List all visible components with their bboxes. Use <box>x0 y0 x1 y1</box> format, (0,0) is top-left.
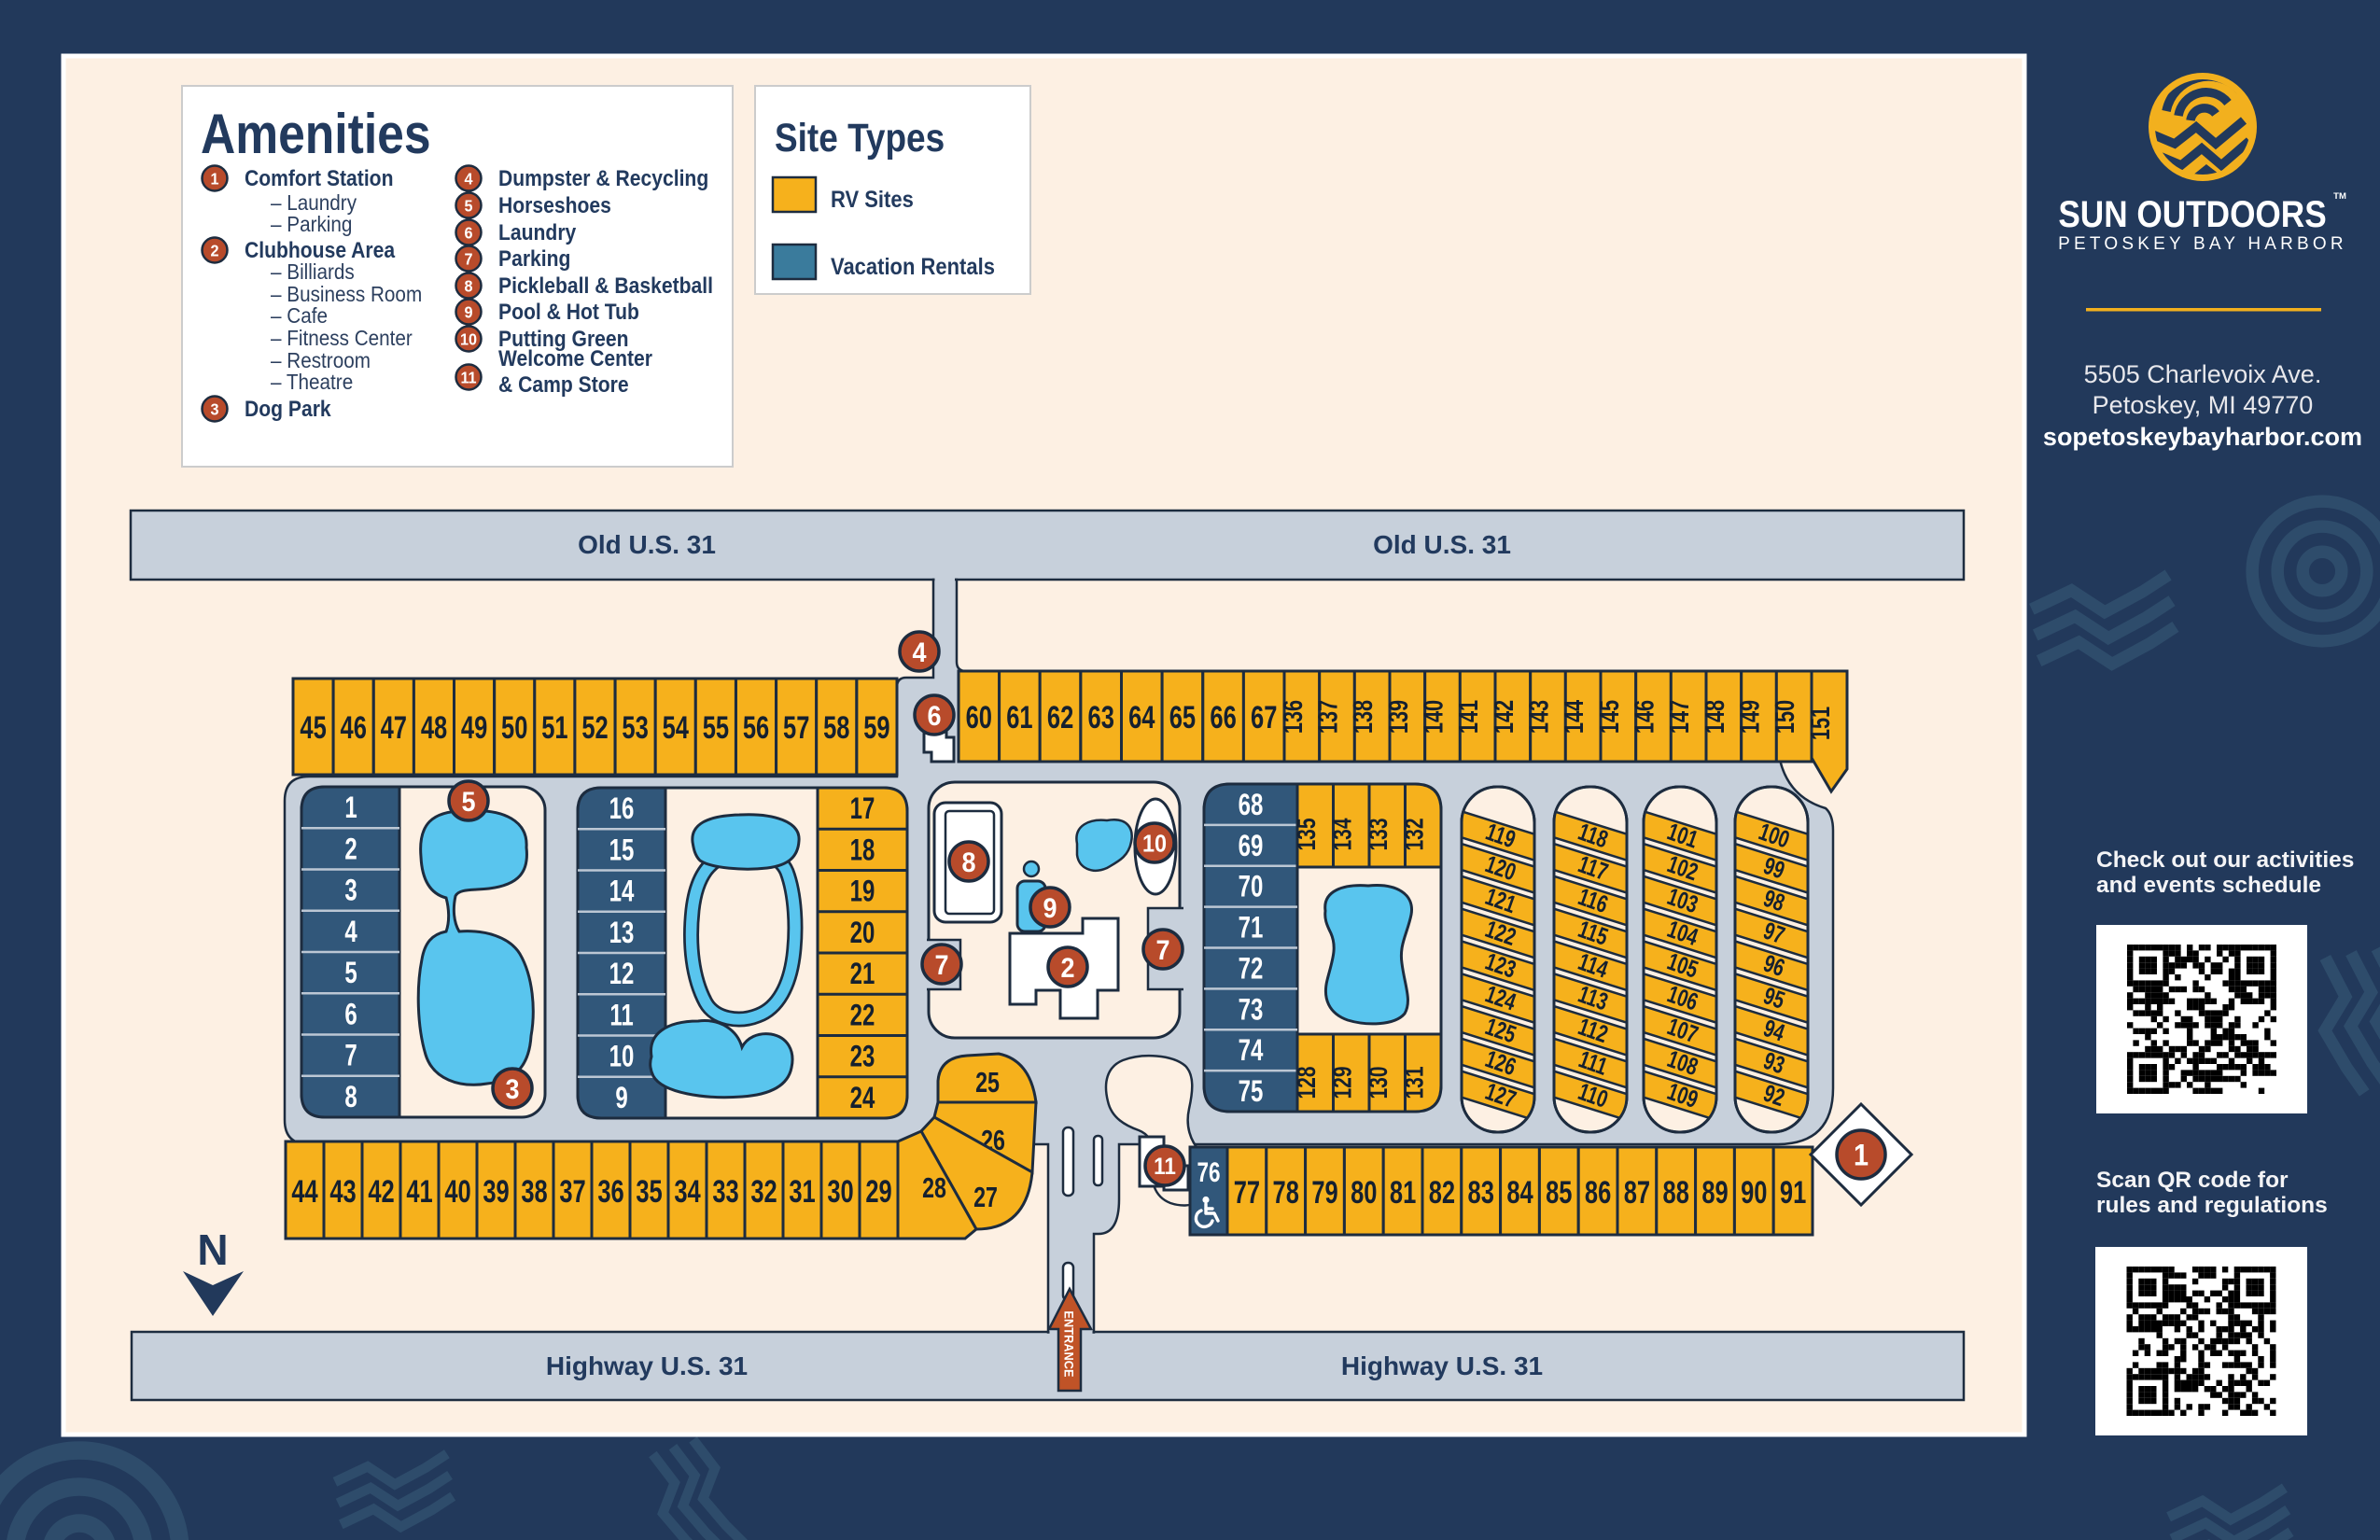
svg-text:17: 17 <box>850 791 875 825</box>
svg-text:28: 28 <box>922 1171 946 1204</box>
svg-text:72: 72 <box>1239 951 1264 985</box>
svg-text:– Parking: – Parking <box>271 212 352 236</box>
svg-text:Old U.S. 31: Old U.S. 31 <box>578 530 716 559</box>
svg-text:15: 15 <box>609 833 635 866</box>
svg-text:75: 75 <box>1239 1074 1264 1108</box>
svg-text:2: 2 <box>210 242 218 260</box>
svg-text:& Camp Store: & Camp Store <box>498 372 629 398</box>
svg-text:37: 37 <box>559 1175 585 1210</box>
svg-text:62: 62 <box>1047 701 1073 735</box>
svg-text:144: 144 <box>1560 699 1589 734</box>
svg-text:45: 45 <box>300 711 326 746</box>
svg-text:48: 48 <box>421 711 447 746</box>
svg-text:29: 29 <box>865 1175 891 1210</box>
svg-text:40: 40 <box>444 1175 470 1210</box>
svg-text:5: 5 <box>344 956 357 989</box>
svg-text:79: 79 <box>1311 1176 1337 1211</box>
svg-text:39: 39 <box>483 1175 509 1210</box>
svg-text:47: 47 <box>381 711 407 746</box>
svg-text:11: 11 <box>460 369 477 387</box>
svg-text:10: 10 <box>609 1039 635 1072</box>
svg-text:4: 4 <box>912 637 926 669</box>
svg-text:5: 5 <box>464 197 472 216</box>
svg-text:59: 59 <box>863 711 889 746</box>
svg-text:11: 11 <box>609 998 633 1031</box>
svg-text:9: 9 <box>464 303 472 322</box>
svg-text:135: 135 <box>1293 818 1322 850</box>
svg-text:43: 43 <box>329 1175 356 1210</box>
svg-text:3: 3 <box>505 1074 519 1106</box>
svg-text:18: 18 <box>850 833 875 866</box>
svg-text:70: 70 <box>1239 869 1264 903</box>
svg-text:129: 129 <box>1329 1066 1358 1099</box>
svg-text:10: 10 <box>1142 831 1167 857</box>
svg-text:128: 128 <box>1293 1066 1322 1099</box>
svg-text:60: 60 <box>966 701 992 735</box>
svg-text:88: 88 <box>1663 1176 1689 1211</box>
svg-text:133: 133 <box>1365 818 1393 850</box>
svg-text:Dog Park: Dog Park <box>245 397 331 422</box>
svg-text:83: 83 <box>1468 1176 1494 1211</box>
svg-text:21: 21 <box>850 957 875 990</box>
svg-text:57: 57 <box>783 711 809 746</box>
svg-text:33: 33 <box>712 1175 738 1210</box>
svg-text:67: 67 <box>1251 701 1277 735</box>
svg-text:145: 145 <box>1595 700 1625 734</box>
svg-text:TM: TM <box>2333 191 2346 202</box>
svg-text:23: 23 <box>850 1039 875 1072</box>
svg-text:Petoskey, MI 49770: Petoskey, MI 49770 <box>2093 391 2314 419</box>
svg-text:11: 11 <box>1154 1154 1176 1180</box>
svg-text:134: 134 <box>1329 818 1358 850</box>
svg-text:Laundry: Laundry <box>498 220 577 245</box>
svg-text:14: 14 <box>609 874 635 907</box>
svg-text:63: 63 <box>1088 701 1114 735</box>
svg-text:– Billiards: – Billiards <box>271 259 355 284</box>
svg-text:8: 8 <box>961 847 975 879</box>
svg-text:31: 31 <box>789 1175 815 1210</box>
svg-text:20: 20 <box>850 915 875 948</box>
svg-text:4: 4 <box>464 170 472 189</box>
svg-text:19: 19 <box>850 874 875 907</box>
svg-text:1: 1 <box>210 170 218 189</box>
svg-text:89: 89 <box>1701 1176 1728 1211</box>
svg-text:Vacation Rentals: Vacation Rentals <box>831 254 995 280</box>
svg-text:3: 3 <box>344 873 357 906</box>
svg-text:12: 12 <box>609 957 635 990</box>
svg-text:– Theatre: – Theatre <box>271 370 353 394</box>
svg-text:148: 148 <box>1701 700 1730 734</box>
svg-text:Comfort Station: Comfort Station <box>245 166 393 191</box>
svg-text:5: 5 <box>461 787 475 819</box>
svg-text:Amenities: Amenities <box>201 102 431 165</box>
svg-text:41: 41 <box>406 1175 432 1210</box>
svg-text:143: 143 <box>1525 700 1555 734</box>
svg-text:53: 53 <box>622 711 648 746</box>
svg-text:51: 51 <box>541 711 567 746</box>
svg-text:Welcome Center: Welcome Center <box>498 346 652 371</box>
svg-text:SUN OUTDOORS: SUN OUTDOORS <box>2058 193 2326 235</box>
svg-text:2: 2 <box>344 832 357 865</box>
svg-text:138: 138 <box>1349 700 1379 734</box>
svg-text:91: 91 <box>1780 1176 1806 1211</box>
svg-text:137: 137 <box>1314 700 1344 734</box>
svg-text:8: 8 <box>464 277 472 296</box>
svg-text:5505 Charlevoix Ave.: 5505 Charlevoix Ave. <box>2084 360 2322 388</box>
svg-text:4: 4 <box>344 914 357 947</box>
svg-text:35: 35 <box>636 1175 662 1210</box>
svg-text:136: 136 <box>1279 700 1309 734</box>
svg-text:52: 52 <box>581 711 608 746</box>
svg-text:– Fitness Center: – Fitness Center <box>271 326 413 350</box>
svg-text:56: 56 <box>743 711 769 746</box>
svg-text:16: 16 <box>609 791 635 825</box>
svg-text:N: N <box>197 1225 228 1274</box>
svg-text:61: 61 <box>1006 701 1032 735</box>
svg-text:151: 151 <box>1806 707 1836 740</box>
svg-text:44: 44 <box>291 1175 318 1210</box>
svg-text:86: 86 <box>1585 1176 1611 1211</box>
svg-text:64: 64 <box>1128 701 1155 735</box>
svg-text:– Cafe: – Cafe <box>271 303 328 328</box>
svg-text:Pickleball & Basketball: Pickleball & Basketball <box>498 273 713 299</box>
svg-text:84: 84 <box>1506 1176 1533 1211</box>
svg-text:6: 6 <box>464 224 472 243</box>
svg-text:rules and regulations: rules and regulations <box>2096 1193 2328 1218</box>
svg-text:Highway U.S. 31: Highway U.S. 31 <box>1341 1351 1543 1380</box>
svg-text:130: 130 <box>1365 1066 1393 1099</box>
svg-text:13: 13 <box>609 915 635 948</box>
svg-text:and events schedule: and events schedule <box>2096 873 2321 898</box>
svg-text:Scan QR code for: Scan QR code for <box>2096 1168 2289 1193</box>
svg-text:82: 82 <box>1429 1176 1455 1211</box>
svg-text:76: 76 <box>1197 1156 1220 1188</box>
svg-text:139: 139 <box>1384 700 1414 734</box>
svg-text:131: 131 <box>1401 1066 1430 1099</box>
svg-text:Pool & Hot Tub: Pool & Hot Tub <box>498 300 639 325</box>
svg-text:6: 6 <box>927 701 941 733</box>
svg-text:1: 1 <box>344 791 357 824</box>
svg-text:8: 8 <box>344 1079 357 1113</box>
svg-text:PETOSKEY BAY HARBOR: PETOSKEY BAY HARBOR <box>2058 234 2347 254</box>
svg-text:7: 7 <box>934 950 948 982</box>
svg-text:68: 68 <box>1239 787 1264 820</box>
svg-text:55: 55 <box>703 711 729 746</box>
svg-text:1: 1 <box>1854 1139 1869 1172</box>
svg-text:66: 66 <box>1210 701 1236 735</box>
svg-text:sopetoskeybayharbor.com: sopetoskeybayharbor.com <box>2043 423 2362 451</box>
svg-text:Dumpster & Recycling: Dumpster & Recycling <box>498 166 708 191</box>
svg-text:Old U.S. 31: Old U.S. 31 <box>1373 530 1511 559</box>
svg-text:77: 77 <box>1234 1176 1260 1211</box>
svg-text:36: 36 <box>597 1175 623 1210</box>
svg-text:30: 30 <box>827 1175 853 1210</box>
svg-text:85: 85 <box>1546 1176 1572 1211</box>
svg-text:141: 141 <box>1454 700 1484 734</box>
svg-text:Horseshoes: Horseshoes <box>498 193 611 218</box>
svg-text:24: 24 <box>850 1080 875 1113</box>
svg-text:46: 46 <box>341 711 367 746</box>
svg-text:87: 87 <box>1624 1176 1650 1211</box>
svg-text:42: 42 <box>368 1175 394 1210</box>
svg-text:6: 6 <box>344 997 357 1030</box>
svg-text:Highway U.S. 31: Highway U.S. 31 <box>546 1351 748 1380</box>
svg-text:25: 25 <box>975 1066 1000 1099</box>
svg-text:50: 50 <box>501 711 527 746</box>
svg-text:132: 132 <box>1401 818 1430 850</box>
svg-text:69: 69 <box>1239 828 1264 861</box>
svg-text:146: 146 <box>1631 700 1660 734</box>
svg-text:150: 150 <box>1771 700 1800 734</box>
svg-text:49: 49 <box>461 711 487 746</box>
svg-text:32: 32 <box>750 1175 777 1210</box>
svg-text:147: 147 <box>1665 700 1695 734</box>
svg-text:Parking: Parking <box>498 246 570 272</box>
svg-text:71: 71 <box>1239 910 1264 944</box>
svg-text:54: 54 <box>663 711 690 746</box>
svg-text:74: 74 <box>1239 1033 1264 1067</box>
svg-text:58: 58 <box>823 711 849 746</box>
svg-text:3: 3 <box>210 400 218 419</box>
svg-text:ENTRANCE: ENTRANCE <box>1061 1310 1075 1377</box>
svg-text:27: 27 <box>973 1181 998 1213</box>
svg-text:Site Types: Site Types <box>775 116 945 160</box>
svg-text:38: 38 <box>521 1175 547 1210</box>
svg-text:7: 7 <box>1155 935 1169 967</box>
svg-text:9: 9 <box>615 1080 627 1113</box>
svg-text:65: 65 <box>1169 701 1196 735</box>
svg-text:90: 90 <box>1741 1176 1767 1211</box>
svg-text:2: 2 <box>1060 953 1074 985</box>
svg-text:73: 73 <box>1239 992 1264 1026</box>
svg-text:7: 7 <box>464 250 472 269</box>
svg-text:140: 140 <box>1420 700 1449 734</box>
svg-text:Check out our activities: Check out our activities <box>2096 847 2354 873</box>
svg-text:81: 81 <box>1390 1176 1416 1211</box>
svg-text:7: 7 <box>344 1038 357 1071</box>
svg-text:34: 34 <box>674 1175 701 1210</box>
svg-text:RV Sites: RV Sites <box>831 187 914 213</box>
svg-text:78: 78 <box>1273 1176 1299 1211</box>
svg-text:10: 10 <box>460 330 477 349</box>
svg-text:142: 142 <box>1490 700 1519 734</box>
svg-text:9: 9 <box>1043 893 1057 925</box>
svg-text:80: 80 <box>1351 1176 1377 1211</box>
svg-text:149: 149 <box>1736 700 1766 734</box>
svg-text:22: 22 <box>850 998 875 1031</box>
